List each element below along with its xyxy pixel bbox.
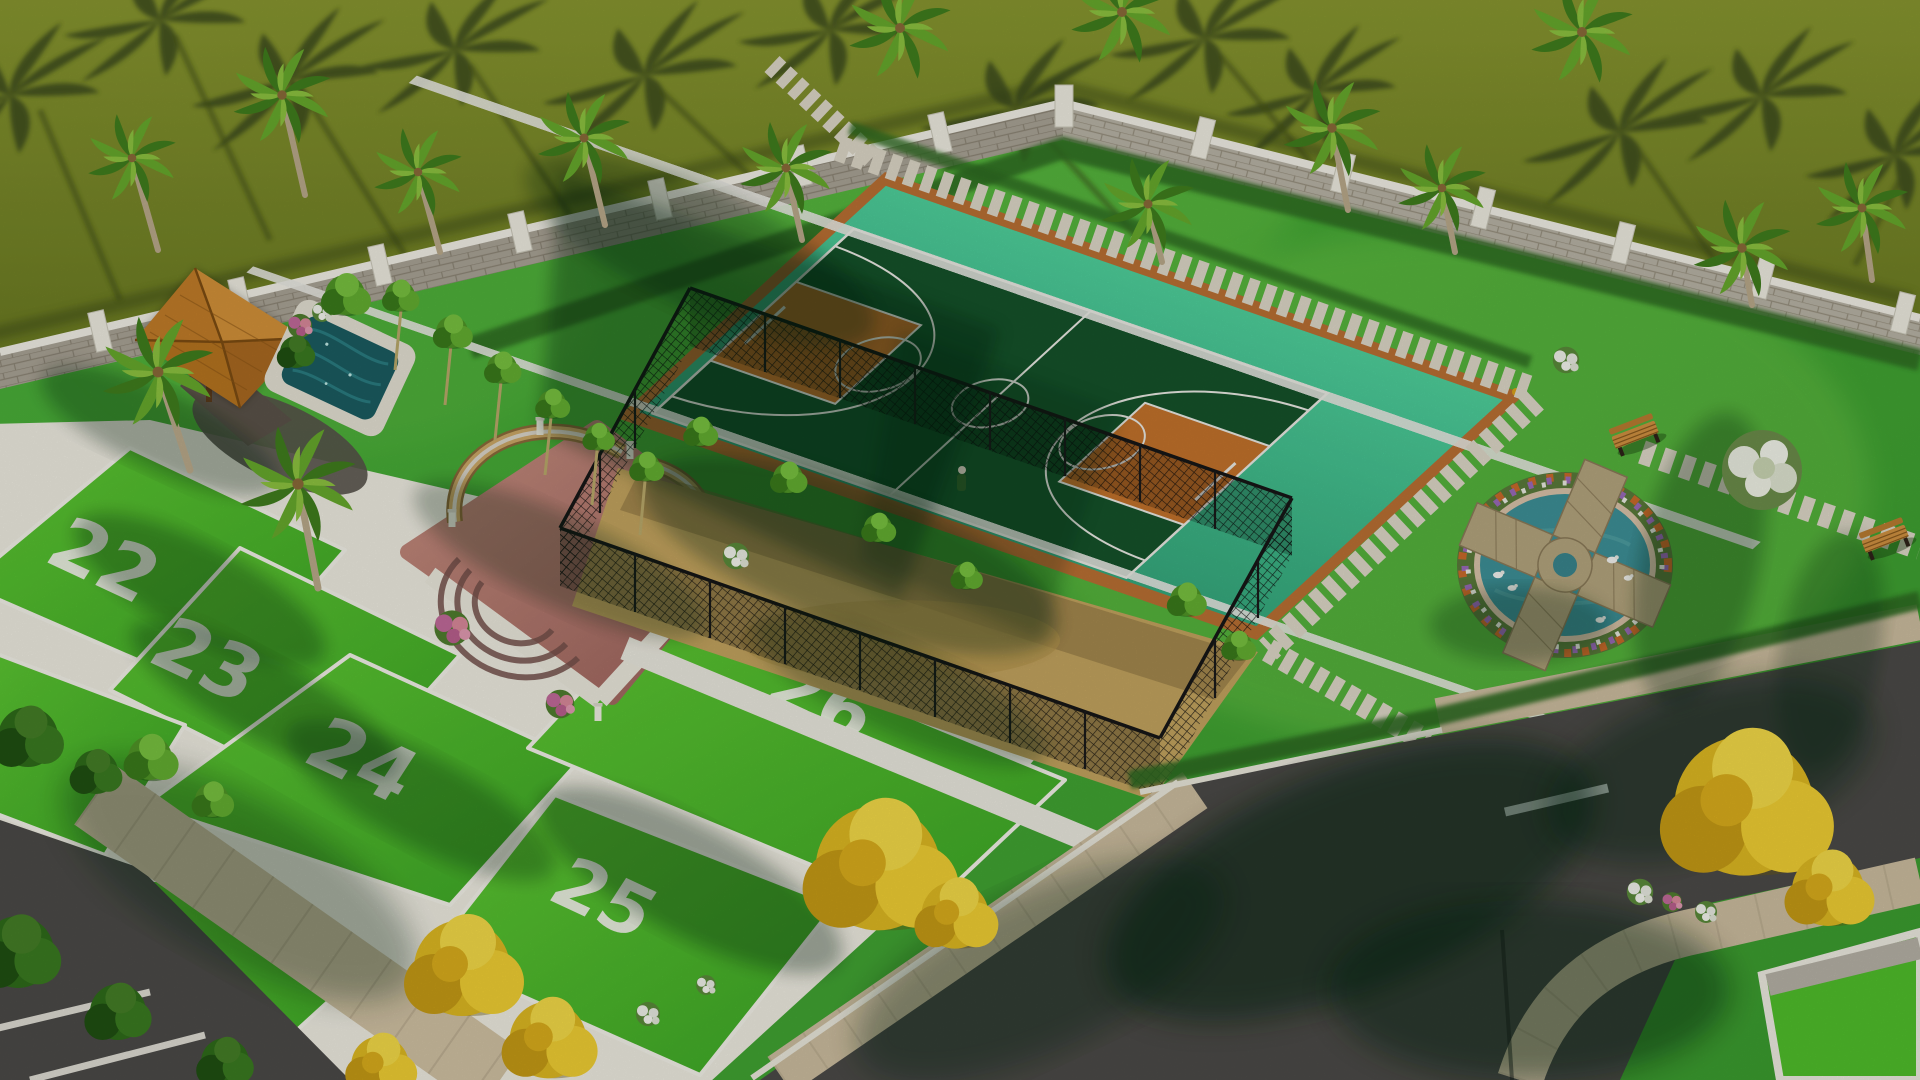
site-plan-render: 22 23 24 25 26 <box>0 0 1920 1080</box>
texture-overlay <box>0 0 1920 1080</box>
scene-canvas: 22 23 24 25 26 <box>0 0 1920 1080</box>
